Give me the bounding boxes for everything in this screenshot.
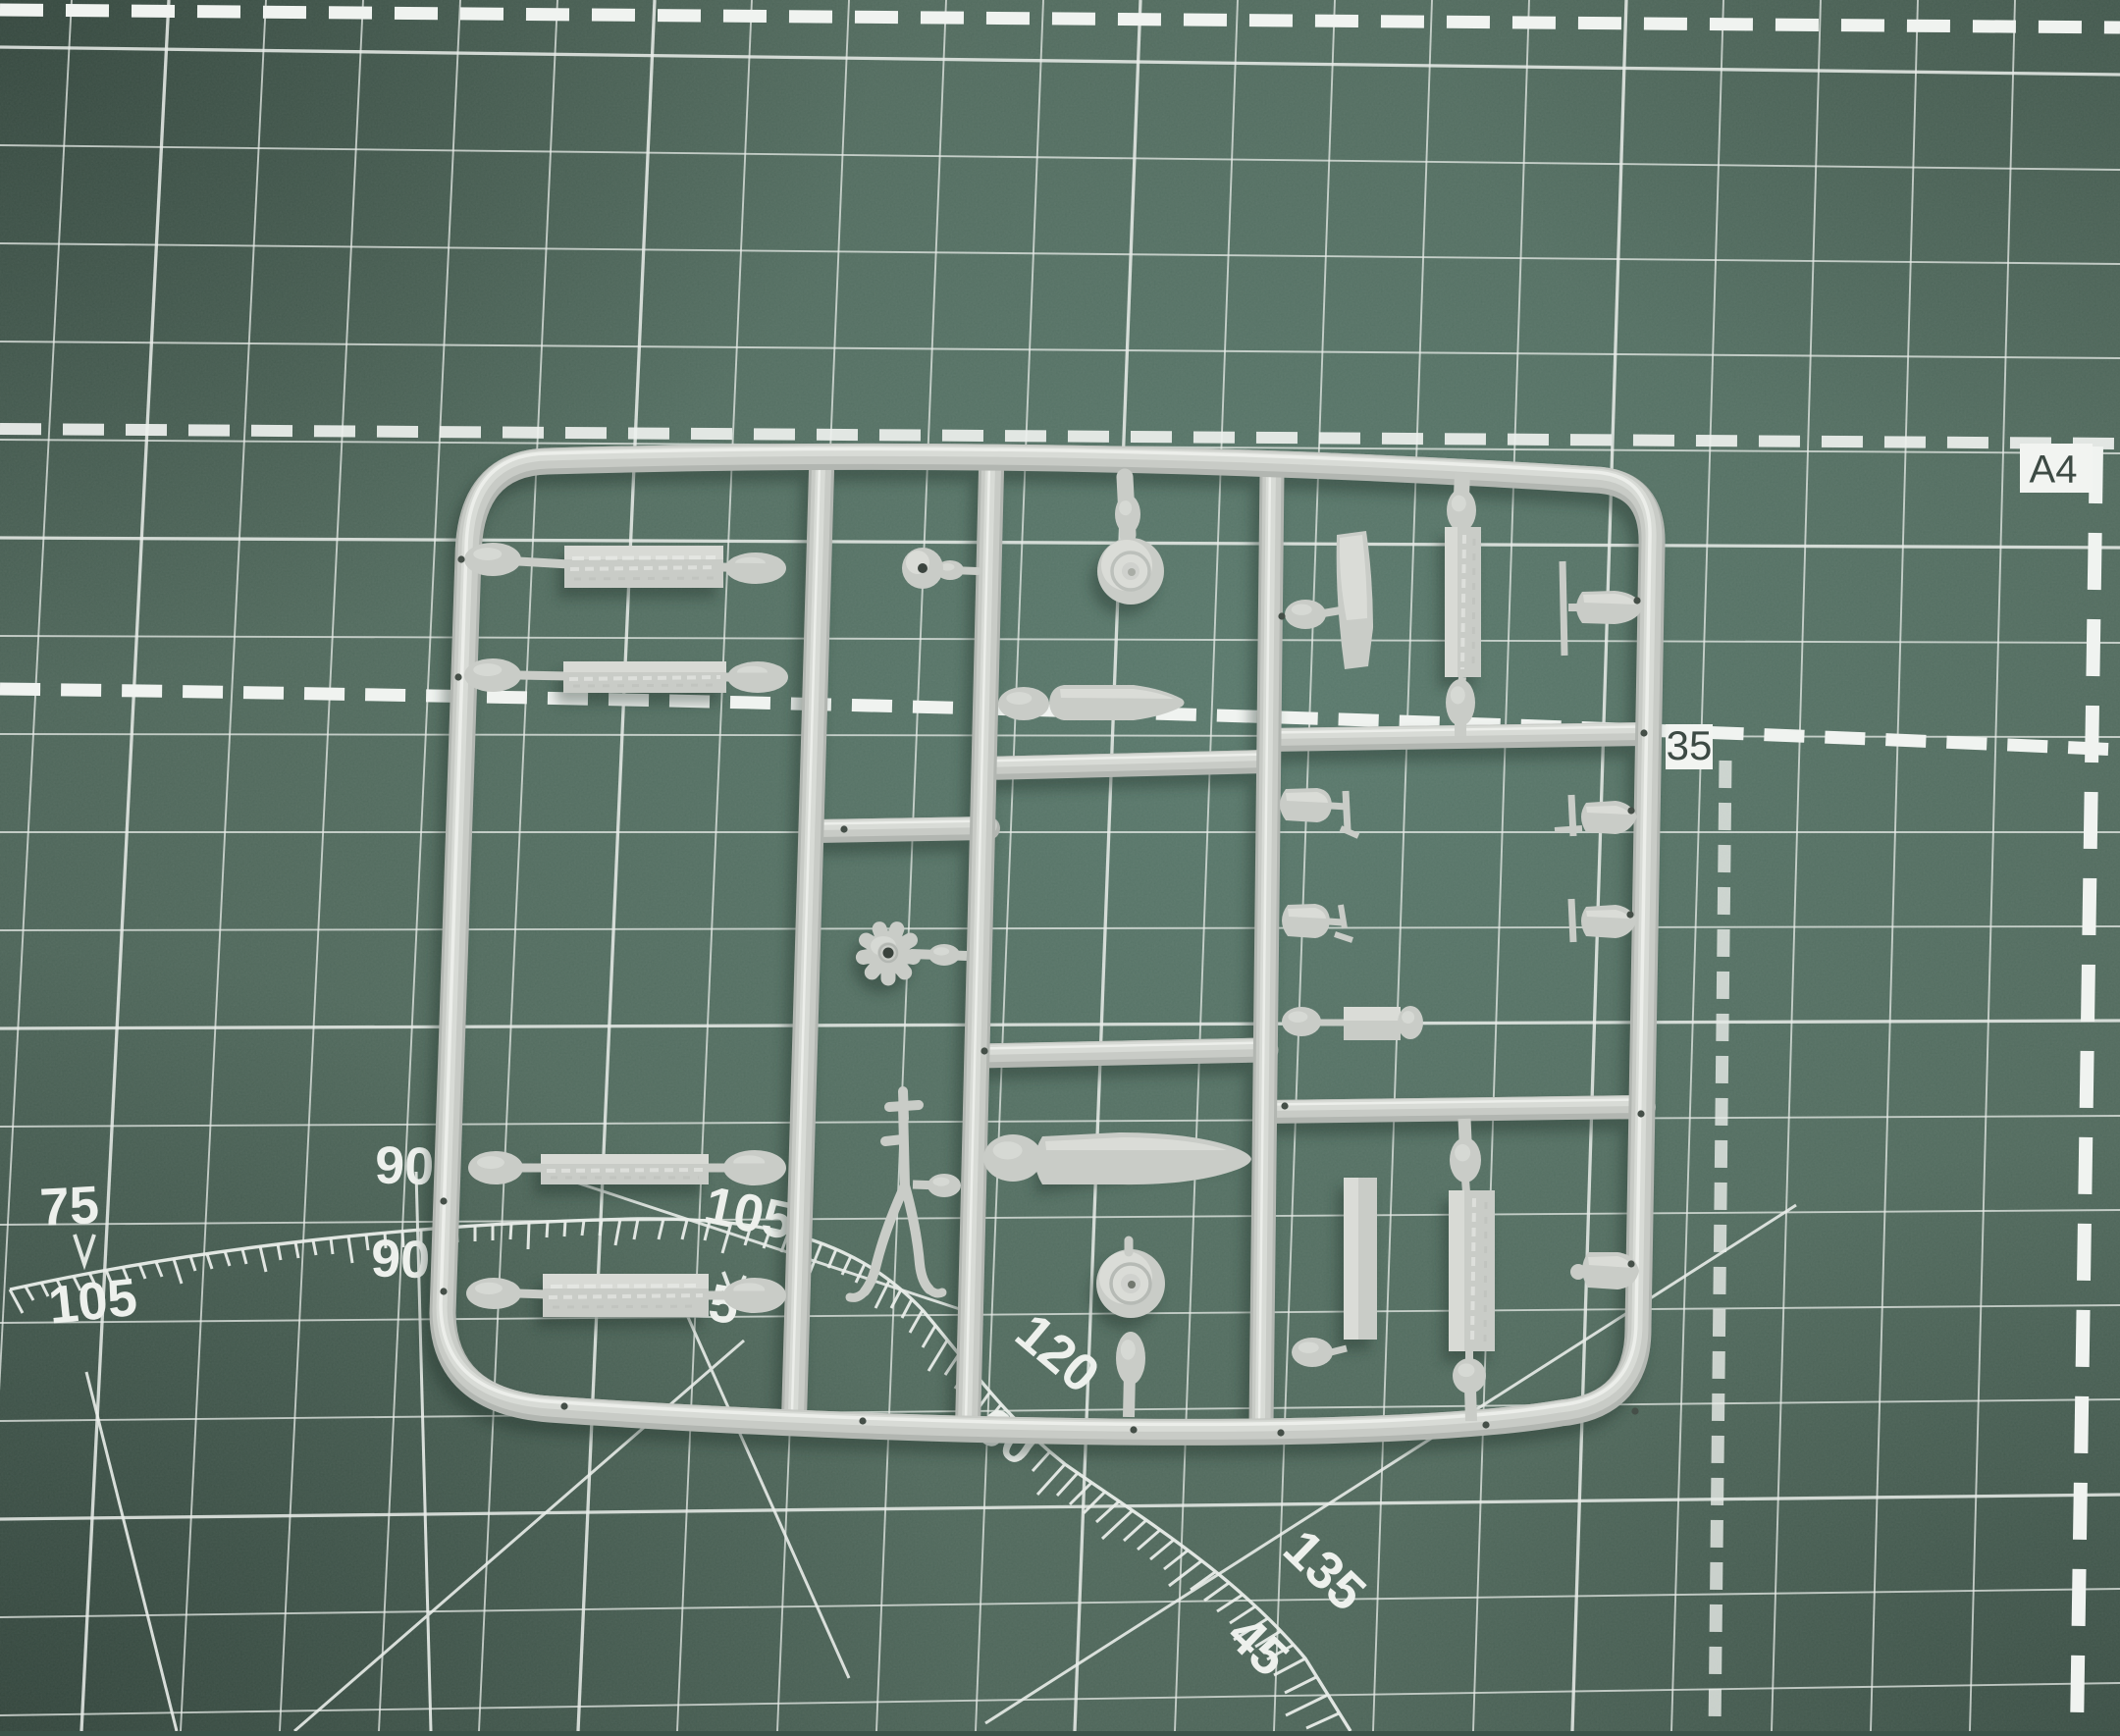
svg-text:90: 90 [374, 1135, 435, 1196]
svg-text:35: 35 [1667, 722, 1713, 768]
svg-text:90: 90 [370, 1229, 431, 1289]
svg-text:A4: A4 [2030, 448, 2078, 492]
svg-text:105: 105 [46, 1268, 140, 1336]
svg-text:75: 75 [38, 1176, 100, 1237]
